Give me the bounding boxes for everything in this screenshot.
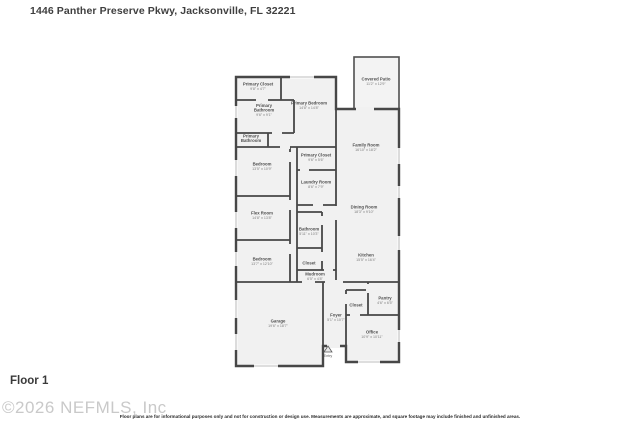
room-label: Closet	[302, 261, 316, 266]
room-label: Pantry4'6" x 6'5"	[377, 295, 393, 305]
room-label: Family Room16'10" x 18'2"	[353, 142, 380, 152]
room-label: PrimaryBathroom9'6" x 9'1"	[254, 103, 274, 117]
room-label: Kitchen15'5" x 16'4"	[356, 252, 376, 262]
room-label: Mudroom6'5" x 4'8"	[305, 271, 325, 281]
room-label: Closet	[349, 303, 363, 308]
room-label: Bathroom5'11" x 10'3"	[299, 226, 320, 236]
house-footprint	[236, 77, 399, 366]
floor-plan-svg: Primary Closet9'8" x 4'7"PrimaryBathroom…	[0, 0, 640, 427]
room-label: Bedroom13'7" x 12'10"	[251, 256, 273, 266]
floor-label: Floor 1	[10, 375, 48, 387]
room-label: Dining Room18'3" x 9'10"	[351, 204, 378, 214]
room-label: Bedroom13'5" x 10'9"	[252, 161, 272, 171]
room-label: Flex Room14'8" x 13'8"	[251, 210, 273, 220]
room-label: PrimaryBathroom	[241, 133, 261, 143]
entry-label: Entry	[324, 354, 333, 358]
disclaimer-text: Floor plans are for informational purpos…	[120, 414, 521, 419]
